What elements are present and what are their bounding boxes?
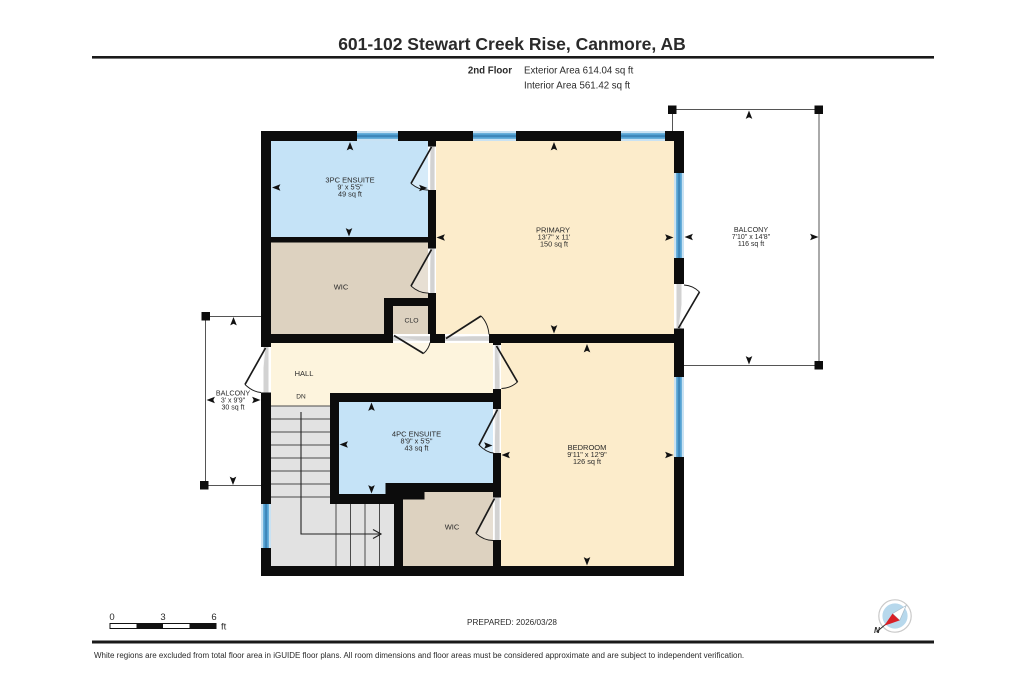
svg-text:49 sq ft: 49 sq ft — [338, 190, 362, 199]
svg-text:Exterior Area 614.04 sq ft: Exterior Area 614.04 sq ft — [524, 66, 634, 77]
svg-text:126 sq ft: 126 sq ft — [573, 457, 601, 466]
svg-text:PREPARED: 2026/03/28: PREPARED: 2026/03/28 — [467, 618, 557, 627]
svg-text:N: N — [874, 626, 880, 635]
svg-text:3: 3 — [160, 612, 165, 623]
svg-text:3' x 9'9": 3' x 9'9" — [221, 398, 246, 405]
svg-text:ft: ft — [221, 622, 227, 633]
svg-text:150 sq ft: 150 sq ft — [540, 240, 568, 249]
svg-text:White regions are excluded fro: White regions are excluded from total fl… — [94, 651, 744, 660]
svg-text:HALL: HALL — [295, 369, 314, 378]
svg-text:6: 6 — [211, 612, 216, 623]
svg-text:BALCONY: BALCONY — [734, 225, 769, 234]
svg-text:DN: DN — [296, 394, 306, 401]
svg-text:601-102 Stewart Creek Rise, Ca: 601-102 Stewart Creek Rise, Canmore, AB — [338, 34, 686, 54]
svg-text:CLO: CLO — [405, 318, 419, 325]
svg-text:0: 0 — [109, 612, 114, 623]
svg-text:Interior Area 561.42 sq ft: Interior Area 561.42 sq ft — [524, 81, 630, 92]
svg-text:WIC: WIC — [445, 523, 460, 532]
svg-text:116 sq ft: 116 sq ft — [738, 241, 764, 248]
svg-text:30 sq ft: 30 sq ft — [222, 405, 245, 412]
svg-text:BALCONY: BALCONY — [216, 389, 251, 398]
svg-text:WIC: WIC — [334, 283, 349, 292]
svg-text:7'10" x 14'8": 7'10" x 14'8" — [732, 234, 771, 241]
svg-text:43 sq ft: 43 sq ft — [405, 444, 429, 453]
svg-text:2nd Floor: 2nd Floor — [468, 66, 512, 77]
